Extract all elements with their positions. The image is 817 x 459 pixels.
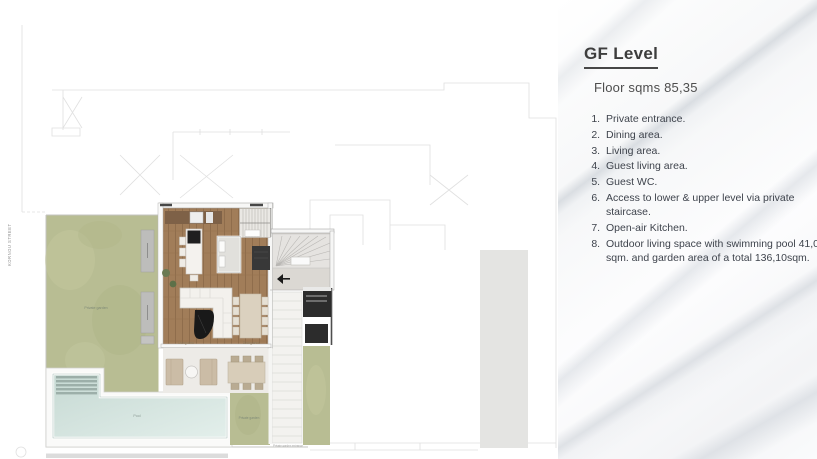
floor-plan: Private garden Living area Dining area P… — [0, 0, 560, 459]
living-label: Living area — [178, 341, 194, 345]
kitchen-sink — [190, 212, 203, 223]
garden-left-label: Private garden — [84, 306, 107, 310]
builtin-cabinets — [303, 287, 331, 343]
street-pavement — [46, 454, 228, 459]
entry-console — [291, 257, 310, 265]
legend-item: Living area. — [603, 144, 817, 158]
legend-item: Guest living area. — [603, 159, 817, 173]
closet — [252, 246, 270, 270]
floor-area-subtitle: Floor sqms 85,35 — [594, 80, 799, 95]
page-title: GF Level — [584, 44, 658, 69]
entrance-hall — [270, 233, 332, 290]
plant — [162, 269, 170, 277]
legend-item: Open-air Kitchen. — [603, 221, 817, 235]
plant — [170, 281, 177, 288]
legend-item: Private entrance. — [603, 112, 817, 126]
pool-label: Pool — [133, 414, 140, 418]
street-label: KORNOU STREET — [7, 223, 12, 266]
guest-wc — [218, 237, 241, 273]
staircase — [240, 209, 271, 238]
slide: Private garden Living area Dining area P… — [0, 0, 817, 459]
legend-item: Guest WC. — [603, 175, 817, 189]
dining-label: Dining area — [243, 341, 260, 345]
walkway — [272, 292, 302, 443]
coffee-table — [186, 366, 198, 378]
cooktop — [188, 231, 201, 244]
legend-item: Dining area. — [603, 128, 817, 142]
adjacent-building-footprint — [480, 250, 528, 448]
legend-list: Private entrance. Dining area. Living ar… — [584, 112, 817, 265]
legend-item: Access to lower & upper level via privat… — [603, 191, 817, 220]
garden-right-label: Private garden — [239, 416, 260, 420]
info-panel: GF Level Floor sqms 85,35 Private entran… — [558, 0, 817, 459]
legend-item: Outdoor living space with swimming pool … — [603, 237, 817, 266]
walkway-label: Private garden entrance — [273, 444, 303, 448]
outdoor-dining — [228, 356, 265, 390]
